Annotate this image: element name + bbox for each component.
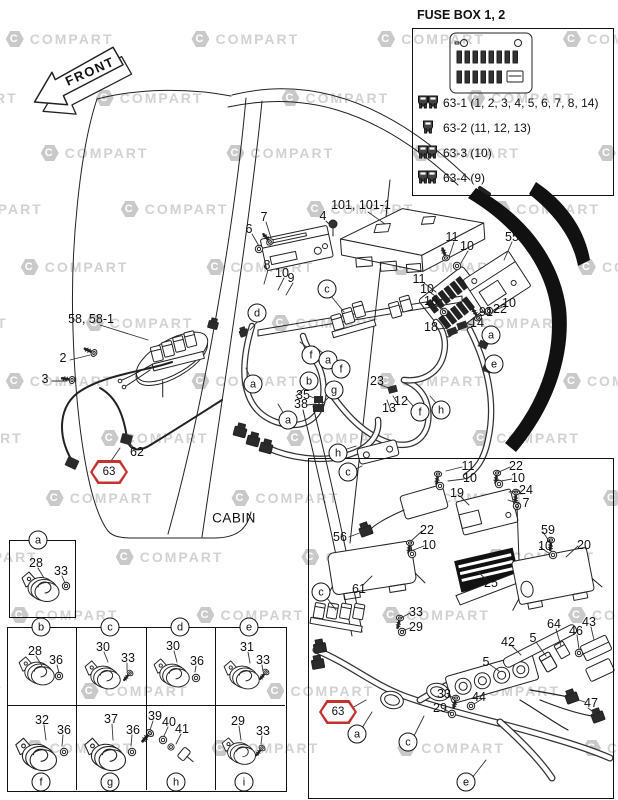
position-letter-circle: h	[432, 401, 451, 420]
part-number-callout: 22	[493, 303, 507, 316]
part-number-callout: 5	[483, 656, 490, 669]
radio-unit	[260, 225, 333, 270]
part-number-callout: 40	[162, 716, 176, 729]
position-letter-circle: b	[300, 372, 319, 391]
fuse-legend-fuses: (9)	[470, 171, 485, 185]
position-letter-circle: c	[312, 583, 331, 602]
part-number-callout: 55	[505, 231, 519, 244]
position-letter-circle: d	[171, 618, 190, 637]
part-number-callout: 19	[450, 487, 464, 500]
part-number-callout: 13	[382, 402, 396, 415]
part-number-callout: 33	[256, 725, 270, 738]
part-number-callout: 58, 58-1	[68, 313, 114, 326]
position-letter-circle: d	[248, 304, 267, 323]
part-number-callout: 28	[28, 645, 42, 658]
parts-diagram-canvas: CCOMPARTCCOMPARTCCOMPARTCCOMPARTCCOMPART…	[0, 0, 618, 800]
part-number-callout: 33	[409, 606, 423, 619]
part-number-callout: 29	[409, 621, 423, 634]
position-letter-circle: a	[348, 725, 367, 744]
part-number-callout: 32	[35, 714, 49, 727]
part-number-callout: 29	[231, 715, 245, 728]
position-letter-circle: c	[101, 618, 120, 637]
position-letter-circle: a	[29, 531, 48, 550]
highlighted-harness-callout: 63	[319, 700, 357, 724]
position-letter-circle: b	[32, 618, 51, 637]
part-number-callout: 64	[547, 618, 561, 631]
position-letter-circle: e	[457, 773, 476, 792]
part-number-callout: 14	[470, 317, 484, 330]
part-number-callout: 10	[538, 540, 552, 553]
part-number-callout: 10	[463, 472, 477, 485]
part-number-callout: 7	[261, 211, 268, 224]
part-number-callout: 9	[288, 272, 295, 285]
part-number-callout: 24	[519, 484, 533, 497]
part-number-callout: 36	[126, 724, 140, 737]
front-arrow: FRONT	[26, 43, 137, 128]
part-number-callout: 33	[437, 688, 451, 701]
fuse-legend-fuses: (11, 12, 13)	[470, 121, 530, 135]
part-number-callout: 33	[256, 654, 270, 667]
fuse-legend-row: 63-2 (11, 12, 13)	[443, 121, 531, 135]
part-number-callout: 36	[190, 655, 204, 668]
part-number-callout: 4	[320, 210, 327, 223]
position-letter-circle: h	[329, 444, 348, 463]
highlighted-harness-callout: 63	[90, 460, 128, 484]
part-number-callout: 47	[584, 697, 598, 710]
part-number-callout: 23	[370, 375, 384, 388]
part-number-callout: 29	[433, 702, 447, 715]
part-number-callout: 8	[264, 259, 271, 272]
position-letter-circle: e	[485, 355, 504, 374]
fuse-legend-id: 63-1	[443, 96, 467, 110]
fuse-legend-id: 63-2	[443, 121, 467, 135]
fuse-legend-id: 63-3	[443, 146, 467, 160]
position-letter-circle: g	[325, 381, 344, 400]
part-number-callout: 11	[446, 231, 459, 244]
part-number-callout: 25	[484, 577, 498, 590]
part-number-callout: 28	[29, 557, 43, 570]
part-number-callout: 12	[394, 395, 408, 408]
part-number-callout: 20	[577, 539, 591, 552]
part-number-callout: 36	[49, 654, 63, 667]
part-number-callout: 31	[240, 641, 254, 654]
grid-divider	[7, 705, 285, 706]
part-number-callout: 16	[424, 295, 438, 308]
part-number-callout: 3	[42, 373, 49, 386]
position-letter-circle: g	[101, 773, 120, 792]
part-number-callout: 22	[420, 524, 434, 537]
part-number-callout: 38	[294, 398, 308, 411]
part-number-callout: 30	[166, 640, 180, 653]
part-number-callout: 7	[523, 497, 530, 510]
fuse-legend-id: 63-4	[443, 171, 467, 185]
position-letter-circle: f	[302, 346, 321, 365]
fuse-legend-fuses: (1, 2, 3, 4, 5, 6, 7, 8, 14)	[470, 96, 598, 110]
part-number-callout: 101, 101-1	[331, 199, 391, 212]
position-letter-circle: a	[244, 375, 263, 394]
detail-box-a	[9, 540, 76, 618]
position-letter-circle: h	[167, 773, 186, 792]
position-letter-circle: i	[235, 773, 254, 792]
grid-divider	[215, 627, 216, 790]
part-number-callout: 2	[60, 352, 67, 365]
part-number-callout: 56	[333, 531, 347, 544]
part-number-callout: 5	[530, 632, 537, 645]
part-number-callout: 33	[54, 565, 68, 578]
position-letter-circle: a	[279, 411, 298, 430]
part-number-callout: 39	[148, 710, 162, 723]
fuse-legend-fuses: (10)	[470, 146, 491, 160]
highlighted-harness-number: 63	[93, 463, 126, 482]
fuse-legend-row: 63-4 (9)	[443, 171, 485, 185]
part-number-callout: 6	[246, 223, 253, 236]
part-number-callout: 46	[569, 625, 583, 638]
part-number-callout: 37	[104, 713, 118, 726]
position-letter-circle: f	[332, 360, 351, 379]
position-letter-circle: c	[399, 733, 418, 752]
part-number-callout: 44	[472, 691, 486, 704]
part-number-callout: 43	[582, 616, 596, 629]
part-number-callout: 41	[175, 723, 189, 736]
fuse-legend-row: 63-3 (10)	[443, 146, 492, 160]
position-letter-circle: e	[240, 618, 259, 637]
cabin-label: CABIN	[212, 511, 256, 525]
part-number-callout: 33	[121, 652, 135, 665]
part-number-callout: 62	[130, 446, 144, 459]
position-letter-circle: f	[411, 403, 430, 422]
highlighted-harness-number: 63	[322, 703, 355, 722]
grid-divider	[76, 627, 77, 790]
part-number-callout: 42	[501, 636, 515, 649]
part-number-callout: 36	[57, 724, 71, 737]
fuse-box-title: FUSE BOX 1, 2	[417, 8, 505, 22]
part-number-callout: 10	[460, 240, 474, 253]
part-number-callout: 10	[422, 539, 436, 552]
position-letter-circle: c	[339, 463, 358, 482]
fuse-legend-row: 63-1 (1, 2, 3, 4, 5, 6, 7, 8, 14)	[443, 96, 598, 110]
part-number-callout: 61	[352, 583, 366, 596]
part-number-callout: 59	[541, 524, 555, 537]
position-letter-circle: c	[318, 280, 337, 299]
position-letter-circle: f	[32, 773, 51, 792]
part-number-callout: 30	[96, 641, 110, 654]
part-number-callout: 18	[424, 321, 438, 334]
position-letter-circle: a	[482, 326, 501, 345]
